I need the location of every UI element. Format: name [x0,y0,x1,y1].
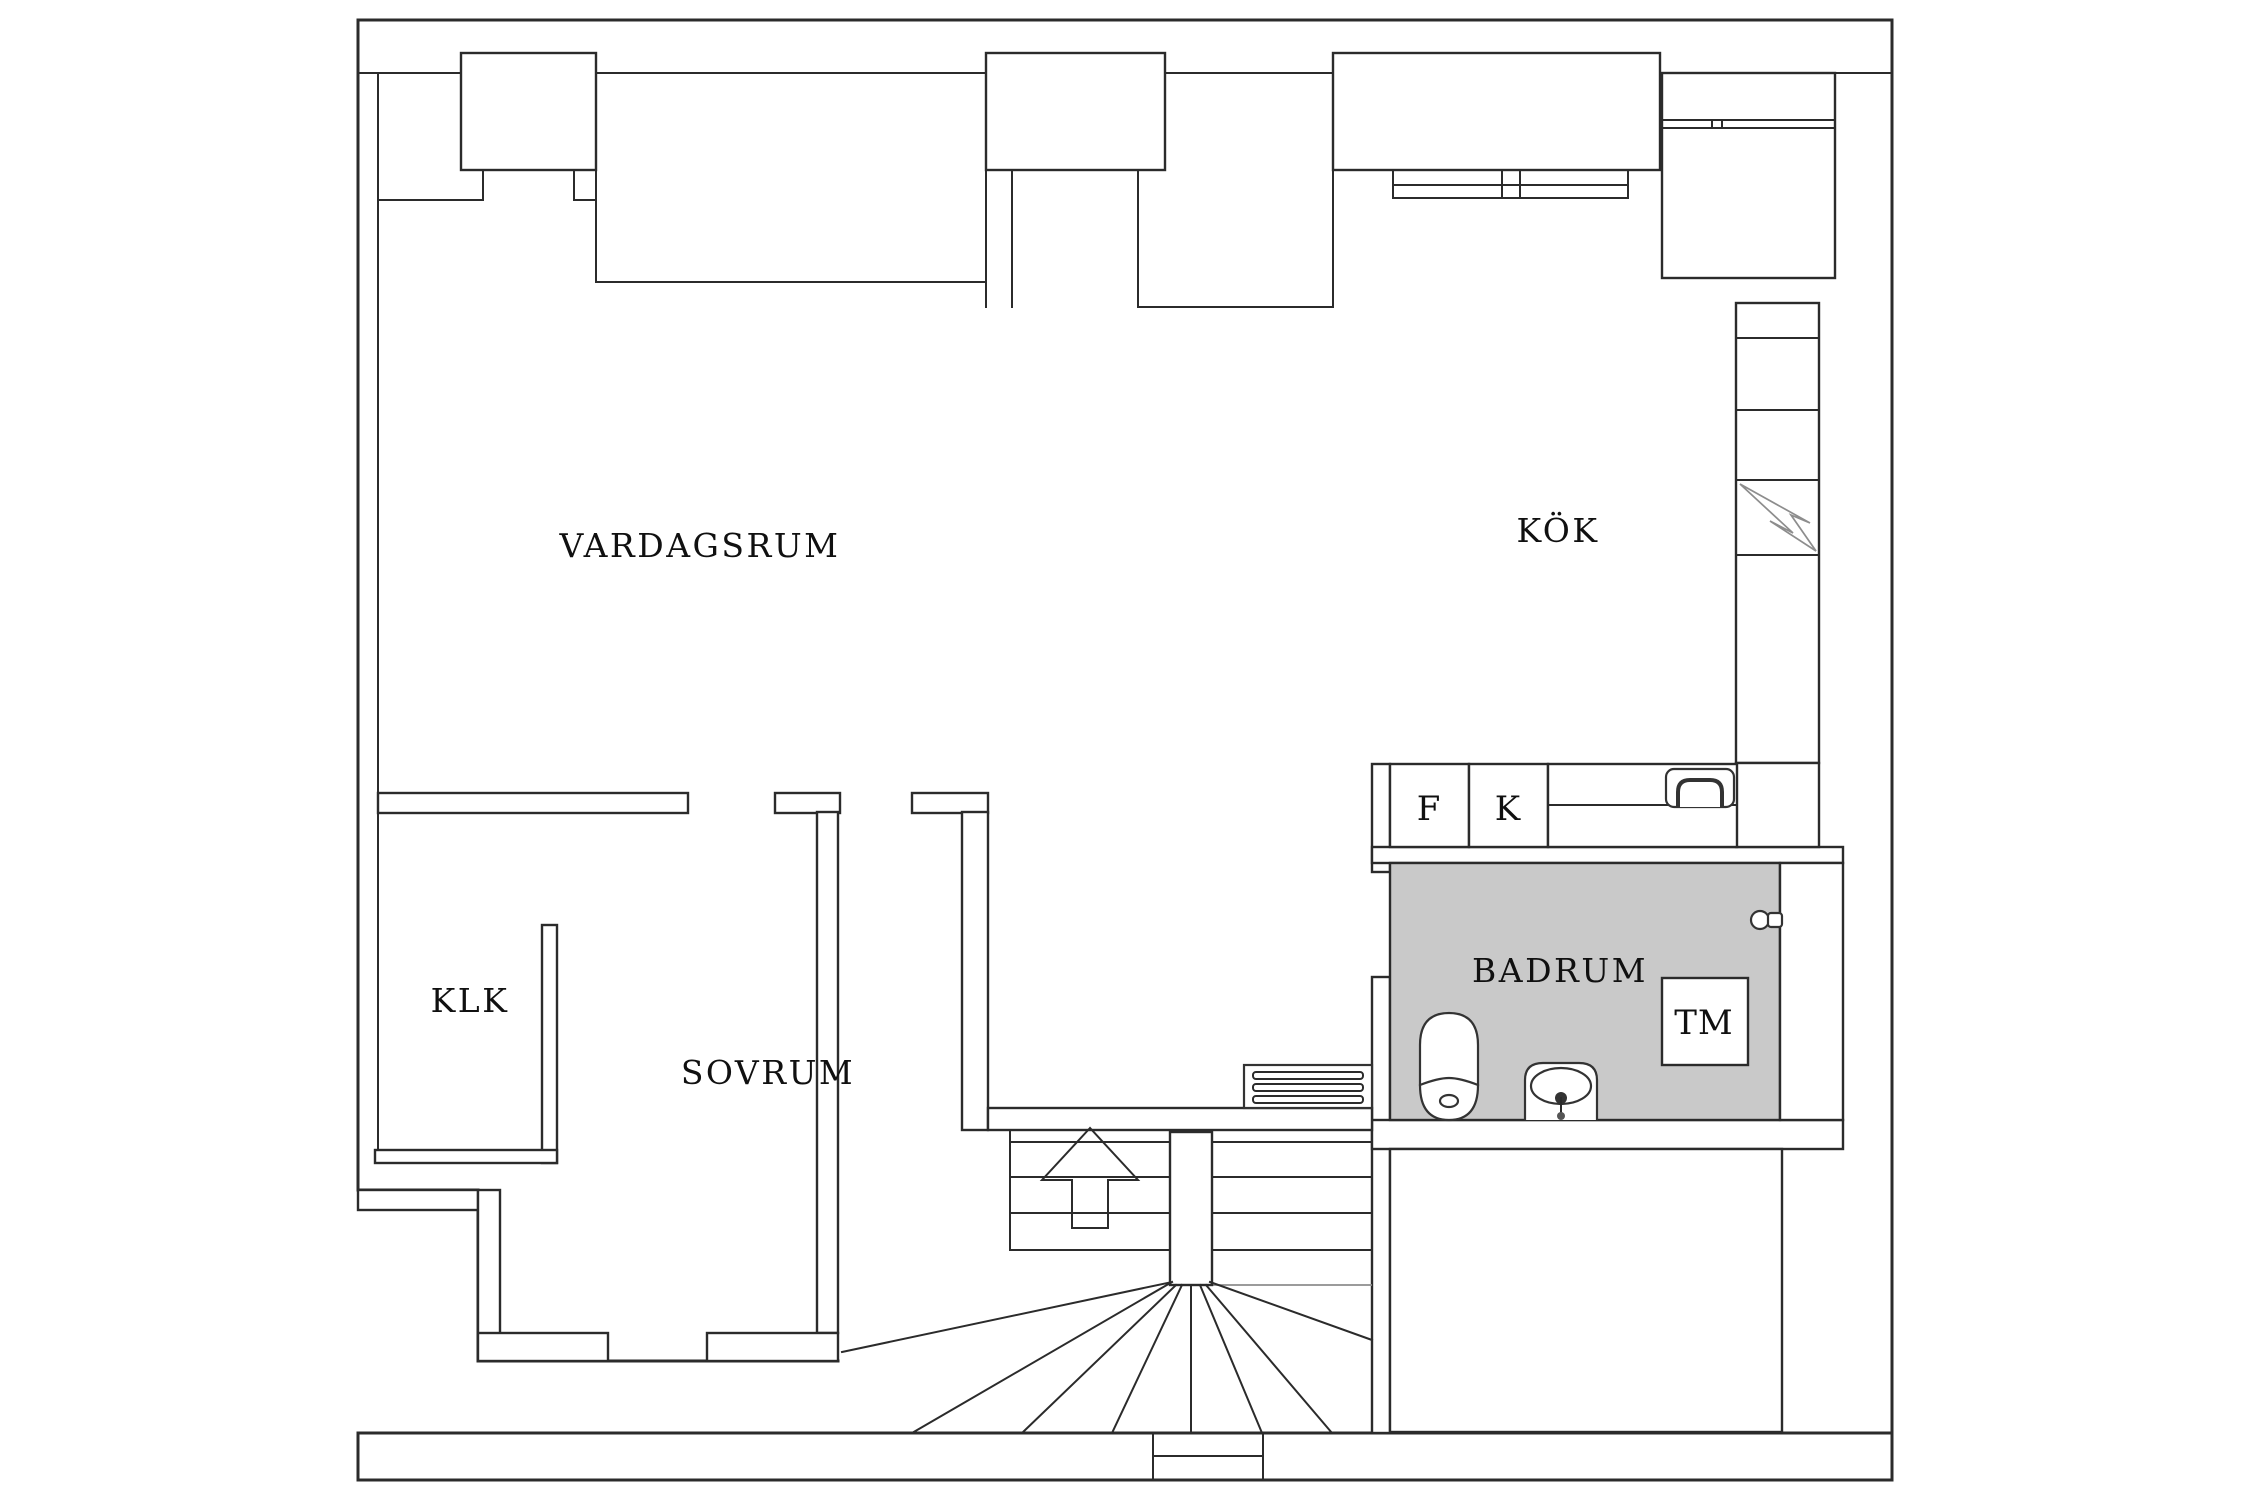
label-cabinet-k: K [1495,789,1521,829]
closet-east-wall [542,925,557,1163]
kitchen-counter-corner [1736,763,1819,847]
washbasin-icon [1525,1063,1597,1120]
toilet-icon [1420,1013,1478,1120]
hall-wall-cap [912,793,988,813]
closet-south-wall [375,1150,557,1163]
hall-west-wall [962,812,988,1130]
kitchen-south-wall [1372,847,1843,863]
staircase [842,1128,1372,1433]
bathroom-west-wall-lower [1372,977,1390,1433]
label-bathroom: BADRUM [1472,951,1648,990]
toilet-flush [1440,1095,1458,1107]
door-knob-icon [1751,911,1782,929]
stair-north-wall [988,1108,1372,1130]
label-washing-machine: TM [1674,1003,1734,1043]
kitchen-cabinet-column [1736,303,1819,763]
stair-winders-left [842,1282,1182,1433]
label-bedroom: SOVRUM [681,1053,855,1092]
knob-head [1751,911,1769,929]
bedroom-south-wall-left [478,1333,608,1361]
window-bay-kitchen [1333,53,1660,170]
kitchen-window-icon [1393,170,1628,198]
knob-base [1768,913,1782,927]
window-bay-2 [986,53,1165,170]
kitchen-fixtures [1390,303,1819,847]
sink-basin [1678,780,1722,807]
bathroom [1390,863,1843,1120]
label-living-room: VARDAGSRUM [559,526,841,565]
label-closet: KLK [431,981,510,1020]
stair-treads-right [1212,1142,1372,1250]
bedroom-south-wall-right [707,1333,838,1361]
stair-spine-wall [1170,1132,1212,1285]
top-window-bays [379,53,1835,307]
bathroom-south-wall [1372,1120,1843,1149]
bedroom-wall-cap [775,793,840,813]
kitchen-corner-bay [1662,73,1835,278]
floor-plan-drawing: VARDAGSRUM KÖK KLK SOVRUM BADRUM TM F K [0,0,2250,1500]
top-wall-interior-faces [596,282,1333,307]
outer-jog-wall [358,1190,478,1210]
bay2-niche-reveals [596,170,1333,307]
livingroom-bedroom-wall [378,793,688,813]
window-bay-1 [461,53,596,170]
label-kitchen: KÖK [1517,510,1600,550]
basin-drain [1557,1112,1565,1120]
label-cabinet-f: F [1417,789,1442,829]
bottom-band [358,1433,1892,1480]
entry-step [1153,1433,1263,1480]
radiator-icon [1244,1065,1372,1108]
stair-treads-left [1010,1142,1170,1250]
bathroom-door-strip [1780,863,1843,1120]
toilet-bowl [1420,1013,1478,1085]
bottom-right-room [1390,1149,1782,1432]
floor-plan-page: VARDAGSRUM KÖK KLK SOVRUM BADRUM TM F K [0,0,2250,1500]
stair-winders-right [1200,1282,1372,1433]
bay1-niche-reveals [379,170,596,200]
kitchen-sink-icon [1666,769,1734,807]
